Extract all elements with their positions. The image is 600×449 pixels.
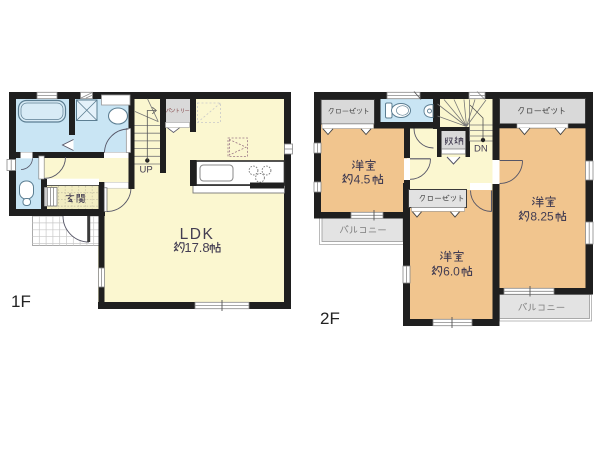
svg-text:2F: 2F [320, 309, 340, 328]
svg-text:4.5: 4.5 [354, 173, 371, 187]
svg-text:6.0: 6.0 [443, 265, 460, 279]
svg-text:DN: DN [474, 144, 488, 155]
svg-text:1F: 1F [11, 292, 31, 311]
svg-text:8.25: 8.25 [530, 210, 554, 224]
svg-text:17.8: 17.8 [184, 240, 209, 255]
svg-text:UP: UP [140, 165, 153, 176]
